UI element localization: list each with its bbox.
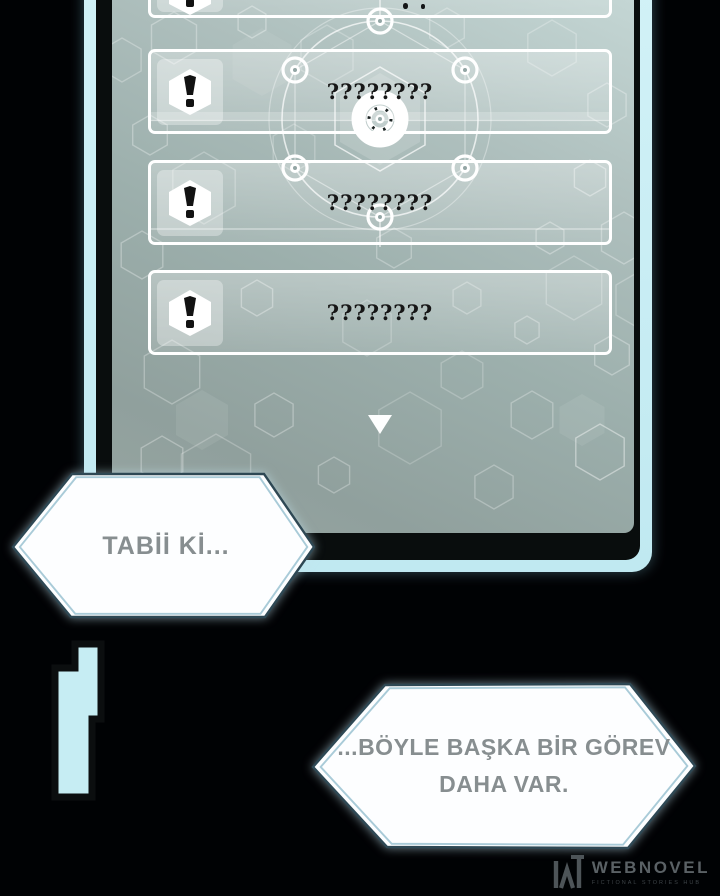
quest-panel: ???????? ???????? ???????? <box>112 0 634 533</box>
speech-bubble-2 <box>306 676 702 856</box>
quest-row-partial[interactable] <box>148 0 612 18</box>
webnovel-watermark: WEBNOVEL FICTIONAL STORIES HUB <box>551 854 710 890</box>
cutoff-text-dot <box>403 3 408 9</box>
quest-row-2[interactable] <box>148 160 612 245</box>
scroll-down-icon[interactable] <box>368 415 392 434</box>
brand-tagline: FICTIONAL STORIES HUB <box>592 880 710 886</box>
icon-patch <box>157 59 223 125</box>
exclamation-icon <box>167 68 213 116</box>
icon-patch <box>157 0 223 12</box>
exclamation-icon <box>167 179 213 227</box>
quest-row-3[interactable] <box>148 270 612 355</box>
brand-name: WEBNOVEL <box>592 858 710 878</box>
next-panel-sliver <box>50 638 108 804</box>
exclamation-icon <box>167 0 213 16</box>
speech-bubble-1 <box>10 468 322 624</box>
cutoff-text-dot <box>421 4 425 9</box>
webnovel-logo-icon <box>551 854 585 890</box>
exclamation-icon <box>167 289 213 337</box>
icon-patch <box>157 170 223 236</box>
quest-row-1[interactable] <box>148 49 612 134</box>
icon-patch <box>157 280 223 346</box>
